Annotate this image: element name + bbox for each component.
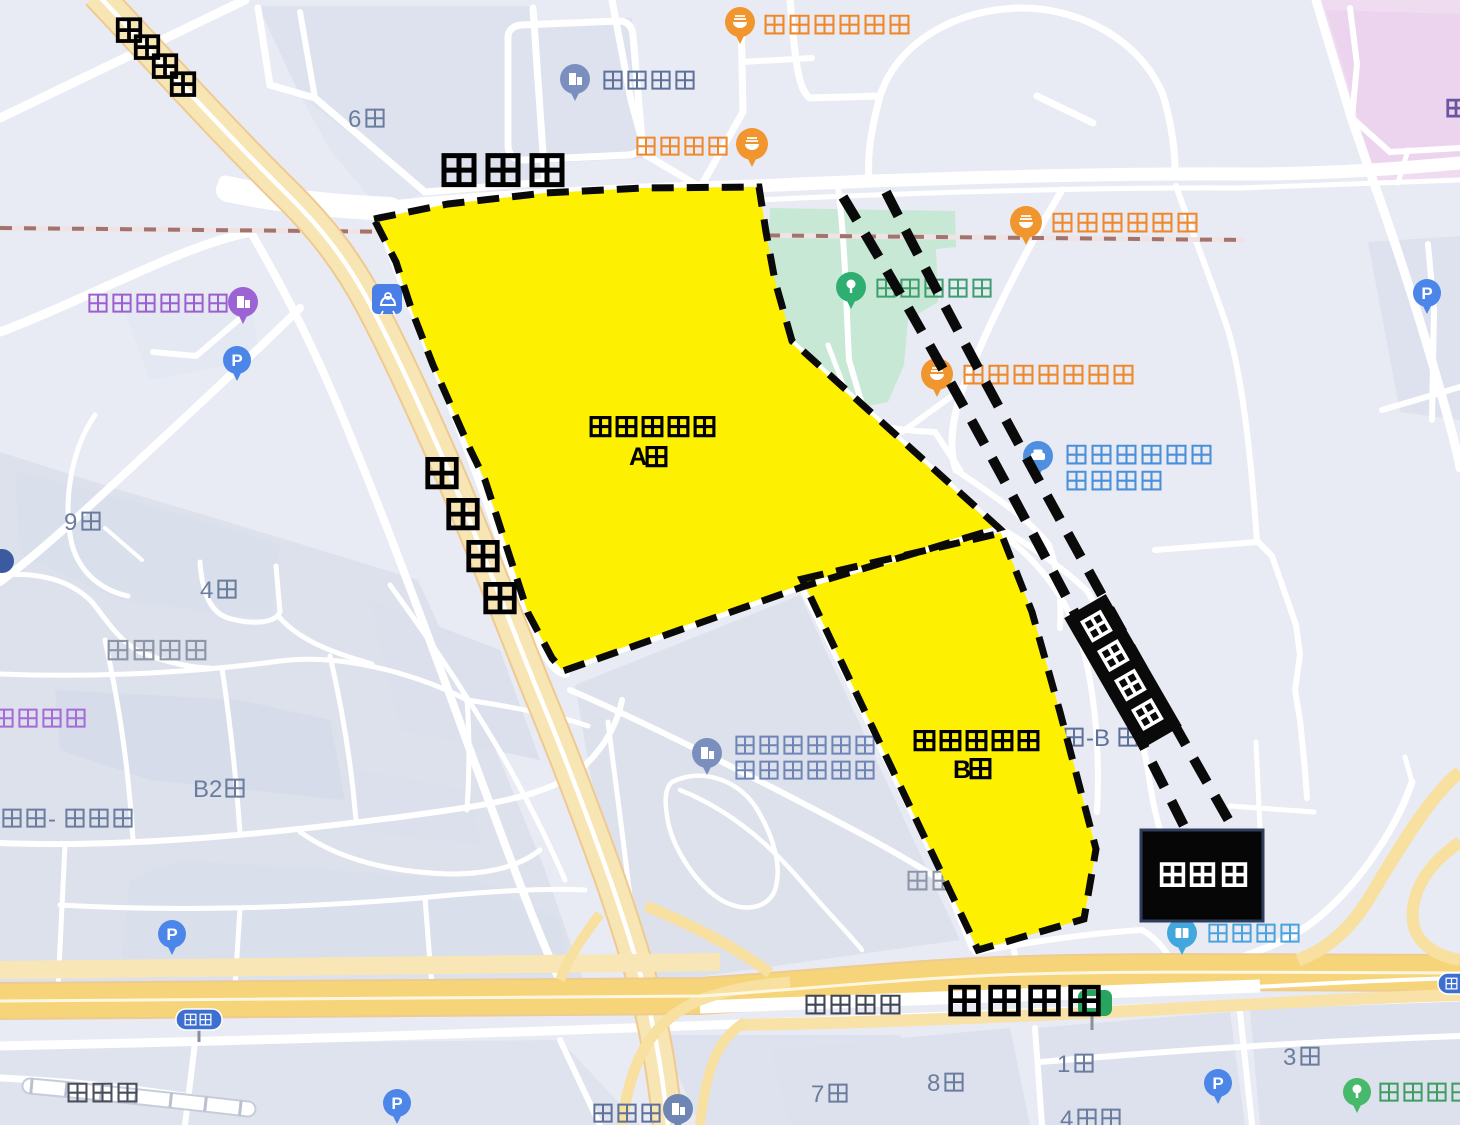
svg-text:P: P bbox=[1212, 1074, 1223, 1093]
svg-text:P: P bbox=[166, 925, 177, 944]
svg-text:9: 9 bbox=[64, 509, 77, 536]
svg-text:4: 4 bbox=[200, 577, 213, 604]
svg-text:4: 4 bbox=[1060, 1106, 1073, 1125]
svg-text:P: P bbox=[1421, 284, 1432, 303]
svg-text:6: 6 bbox=[348, 106, 361, 133]
svg-text:-: - bbox=[48, 806, 56, 833]
svg-text:B: B bbox=[953, 756, 971, 784]
svg-text:3: 3 bbox=[1283, 1044, 1296, 1071]
svg-text:-B: -B bbox=[1086, 725, 1110, 752]
svg-text:B2: B2 bbox=[193, 776, 222, 803]
svg-text:1: 1 bbox=[1057, 1051, 1070, 1078]
svg-text:7: 7 bbox=[811, 1081, 824, 1108]
svg-text:A: A bbox=[629, 443, 647, 471]
svg-text:P: P bbox=[231, 351, 242, 370]
svg-text:8: 8 bbox=[927, 1070, 940, 1097]
svg-text:P: P bbox=[391, 1094, 402, 1113]
